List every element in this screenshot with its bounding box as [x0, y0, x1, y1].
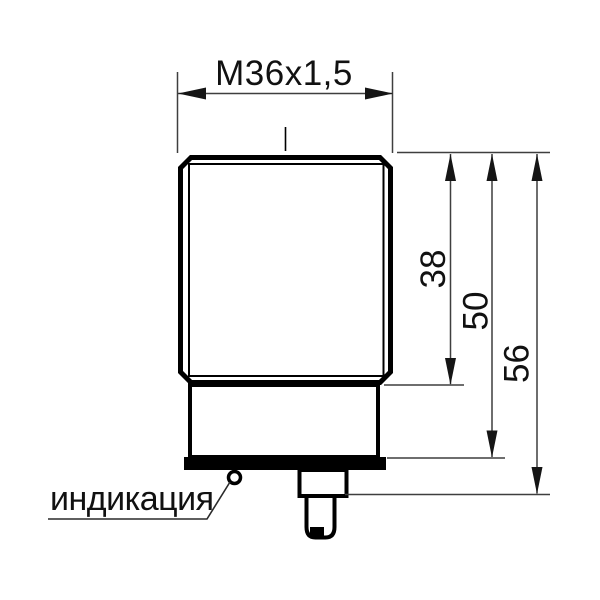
arrowhead-50-up	[487, 154, 498, 181]
connector-keyway-notch	[310, 527, 324, 536]
sensor-dimension-drawing: M36x1,5 38 50 56 индикация	[0, 0, 600, 600]
connector-base	[300, 470, 347, 496]
led-indicator	[229, 472, 241, 484]
arrowhead-38-down	[445, 358, 456, 385]
total-length-dimension-label: 56	[498, 344, 537, 383]
arrowhead-38-up	[445, 154, 456, 181]
arrowhead-thread-left	[178, 88, 206, 100]
arrowhead-56-up	[532, 154, 543, 181]
sensor-housing-section	[190, 385, 378, 457]
technical-drawing-canvas: M36x1,5 38 50 56 индикация	[0, 0, 600, 600]
arrowhead-thread-right	[365, 88, 393, 100]
thread-size-label: M36x1,5	[215, 54, 353, 93]
flange-plate	[184, 457, 386, 470]
arrowhead-56-down	[532, 467, 543, 494]
indication-callout-label: индикация	[50, 480, 214, 518]
thread-length-dimension-label: 38	[414, 250, 453, 289]
arrowhead-50-down	[487, 431, 498, 458]
threaded-barrel-outline	[181, 158, 391, 383]
housing-length-dimension-label: 50	[457, 292, 496, 331]
